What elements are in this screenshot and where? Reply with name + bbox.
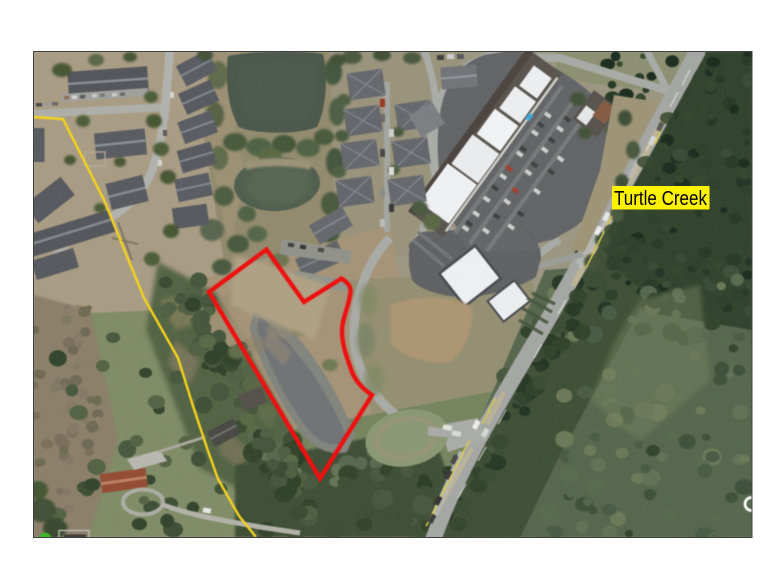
svg-text:Turtle Creek: Turtle Creek — [614, 188, 708, 210]
